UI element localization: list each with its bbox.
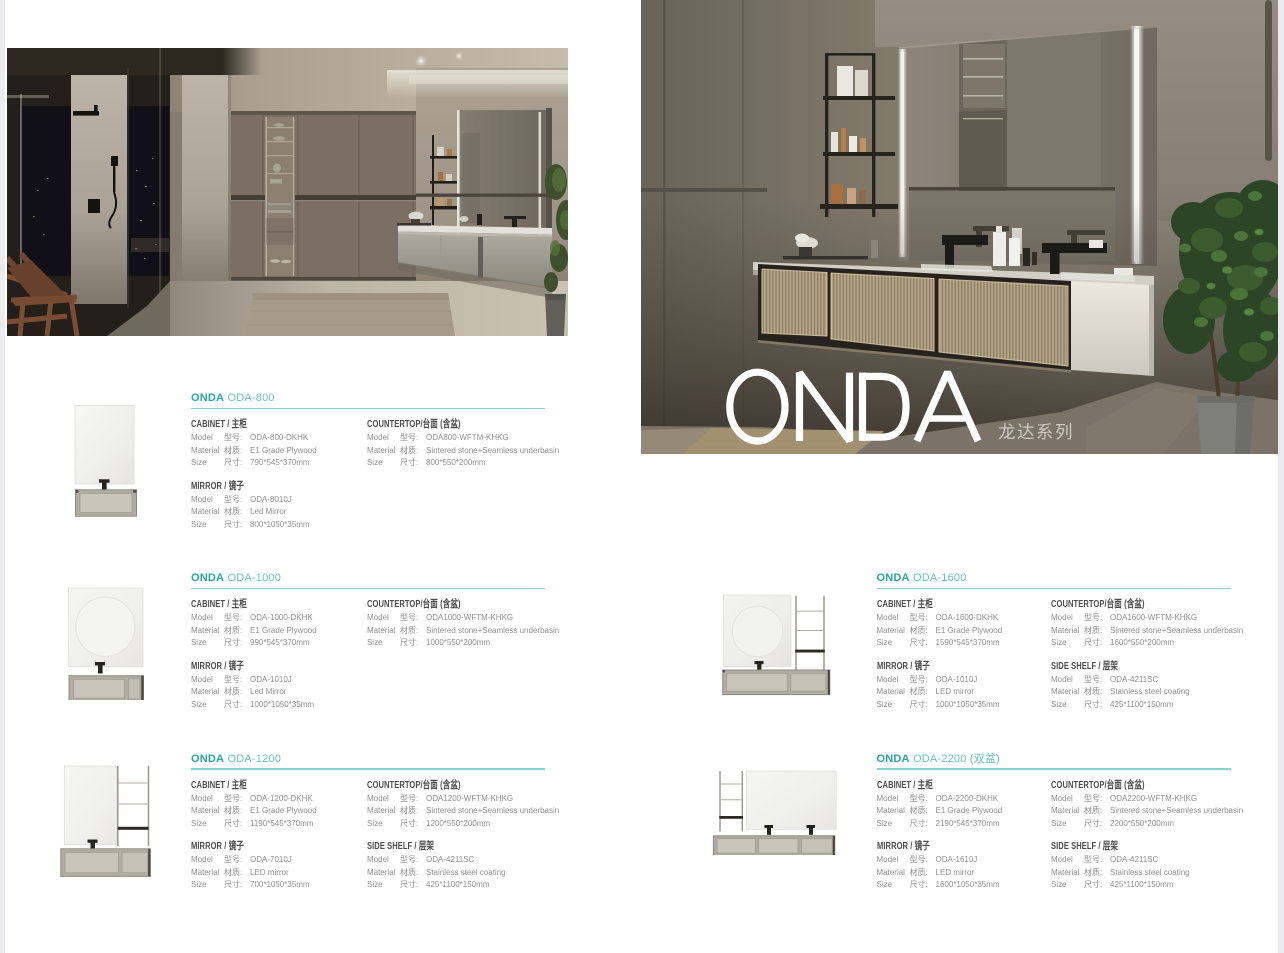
svg-text:龙达系列: 龙达系列 bbox=[998, 422, 1074, 442]
